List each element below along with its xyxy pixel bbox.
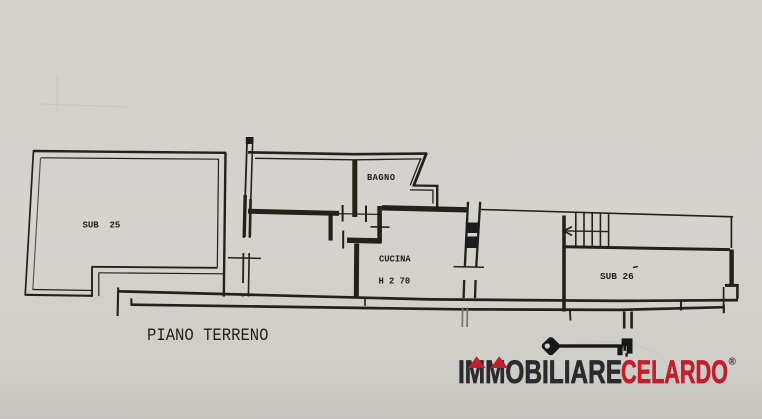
- svg-text:CELARDO: CELARDO: [621, 354, 728, 390]
- svg-text:H 2 70: H 2 70: [379, 277, 411, 287]
- svg-text:SUB 25: SUB 25: [83, 221, 121, 231]
- svg-text:BAGNO: BAGNO: [367, 173, 395, 183]
- svg-text:®: ®: [729, 357, 737, 368]
- svg-text:CUCINA: CUCINA: [379, 255, 411, 265]
- svg-text:IMMOBILIARE: IMMOBILIARE: [458, 354, 622, 390]
- svg-text:PIANO TERRENO: PIANO TERRENO: [147, 327, 269, 346]
- svg-text:SUB 26: SUB 26: [600, 271, 634, 282]
